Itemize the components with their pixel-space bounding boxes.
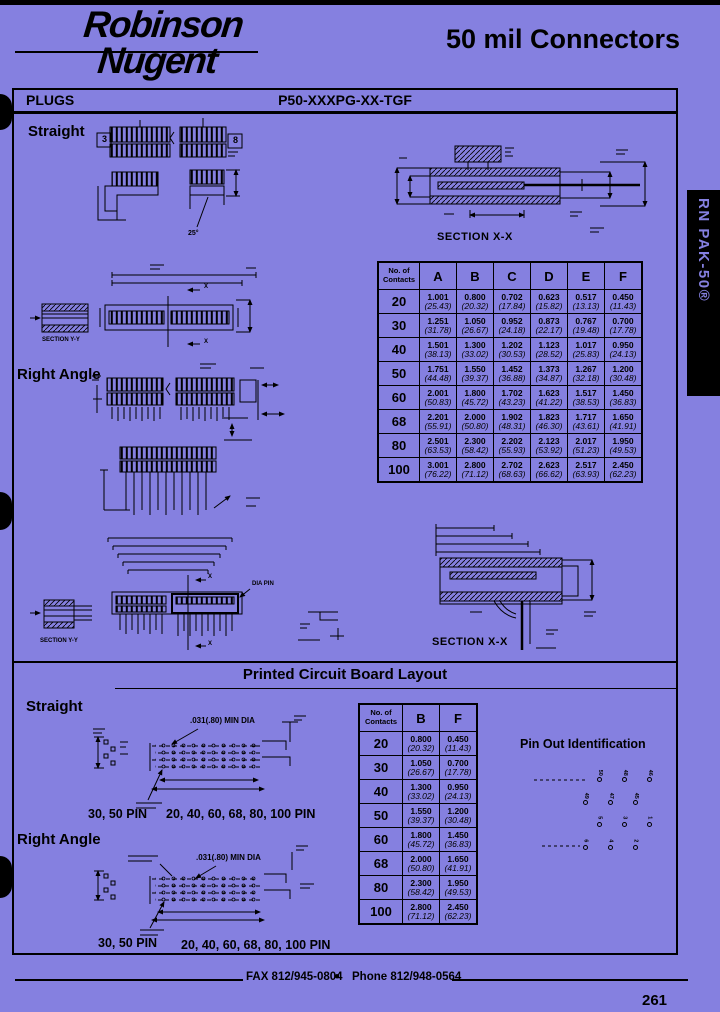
dim-cell: 2.800(71.12) — [403, 900, 440, 925]
dim-cell: 1.450(36.83) — [440, 828, 478, 852]
pins-30-50-label-2: 30, 50 PIN — [98, 936, 157, 950]
table-row: 602.001(50.83)1.800(45.72)1.702(43.23)1.… — [378, 386, 642, 410]
dim-cell: 1.200(30.48) — [605, 362, 643, 386]
dim-cell: 2.201(55.91) — [420, 410, 457, 434]
dim-cell: 1.123(28.52) — [531, 338, 568, 362]
pinout-title: Pin Out Identification — [520, 737, 646, 751]
dim-cell: 1.017(25.83) — [568, 338, 605, 362]
dim-cell: 2.450(62.23) — [605, 458, 643, 483]
table-header-row: No. of ContactsBF — [359, 704, 477, 732]
dim-cell: 1.950(49.53) — [440, 876, 478, 900]
contacts-count: 68 — [378, 410, 420, 434]
dim-cell: 1.751(44.48) — [420, 362, 457, 386]
pcb-layout-title: Printed Circuit Board Layout — [12, 666, 678, 683]
section-xx-label-1: SECTION X-X — [437, 231, 513, 243]
dim-cell: 0.767(19.48) — [568, 314, 605, 338]
contacts-count: 80 — [378, 434, 420, 458]
straight-section-label: Straight — [28, 123, 85, 140]
dim-cell: 1.550(39.37) — [403, 804, 440, 828]
dim-cell: 0.623(15.82) — [531, 290, 568, 314]
dim-cell: 2.450(62.23) — [440, 900, 478, 925]
dim-cell: 1.550(39.37) — [457, 362, 494, 386]
pin-marker: 2 — [630, 838, 640, 850]
dim-cell: 1.373(34.87) — [531, 362, 568, 386]
side-tab-label: RN PAK-50® — [695, 198, 712, 302]
dim-cell: 2.000(50.80) — [457, 410, 494, 434]
dim-cell: 1.517(38.53) — [568, 386, 605, 410]
pin-marker: 50 — [594, 770, 604, 782]
pcb-straight-label: Straight — [26, 698, 83, 715]
contacts-count: 40 — [359, 780, 403, 804]
table-row: 401.501(38.13)1.300(33.02)1.202(30.53)1.… — [378, 338, 642, 362]
dim-cell: 1.200(30.48) — [440, 804, 478, 828]
table-row: 802.300(58.42)1.950(49.53) — [359, 876, 477, 900]
dim-cell: 0.700(17.78) — [605, 314, 643, 338]
dim-cell: 0.450(11.43) — [605, 290, 643, 314]
column-header: No. of Contacts — [378, 262, 420, 290]
contacts-count: 40 — [378, 338, 420, 362]
table-row: 301.050(26.67)0.700(17.78) — [359, 756, 477, 780]
pcb-title-underline — [115, 688, 676, 689]
contacts-count: 60 — [378, 386, 420, 410]
binder-mark-1 — [0, 94, 12, 130]
dim-cell: 0.800(20.32) — [403, 732, 440, 756]
pins-rest-label-1: 20, 40, 60, 68, 80, 100 PIN — [166, 807, 315, 821]
contacts-count: 100 — [378, 458, 420, 483]
pinout-grid: 504846494745531642 — [528, 762, 678, 862]
dim-cell: 0.950(24.13) — [605, 338, 643, 362]
dim-cell: 1.902(48.31) — [494, 410, 531, 434]
dim-cell: 1.251(31.78) — [420, 314, 457, 338]
page-number: 261 — [642, 992, 667, 1009]
dim-cell: 2.000(50.80) — [403, 852, 440, 876]
table-row: 301.251(31.78)1.050(26.67)0.952(24.18)0.… — [378, 314, 642, 338]
pin-marker: 3 — [619, 815, 629, 827]
x-plane-marker-3: X — [208, 574, 212, 580]
balloon-marker-8: 8 — [230, 135, 241, 145]
contacts-count: 20 — [378, 290, 420, 314]
column-header: D — [531, 262, 568, 290]
table-row: 200.800(20.32)0.450(11.43) — [359, 732, 477, 756]
column-header: F — [440, 704, 478, 732]
dim-cell: 2.300(58.42) — [457, 434, 494, 458]
pin-marker: 46 — [644, 770, 654, 782]
dim-cell: 1.650(41.91) — [440, 852, 478, 876]
pin-marker: 47 — [605, 793, 615, 805]
dim-cell: 2.300(58.42) — [403, 876, 440, 900]
binder-mark-3 — [0, 856, 12, 898]
footer-rule-left — [15, 979, 243, 981]
dim-cell: 1.950(49.53) — [605, 434, 643, 458]
pin-marker: 45 — [630, 793, 640, 805]
balloon-marker-3: 3 — [99, 134, 110, 144]
column-header: A — [420, 262, 457, 290]
dim-cell: 1.800(45.72) — [457, 386, 494, 410]
table-row: 401.300(33.02)0.950(24.13) — [359, 780, 477, 804]
brand-name-line2: Nugent — [96, 42, 218, 79]
table-row: 501.751(44.48)1.550(39.37)1.452(36.88)1.… — [378, 362, 642, 386]
dim-cell: 3.001(76.22) — [420, 458, 457, 483]
dim-cell: 0.517(13.13) — [568, 290, 605, 314]
contacts-count: 60 — [359, 828, 403, 852]
dia-pin-annotation: DIA PIN — [252, 581, 274, 587]
dim-cell: 1.202(30.53) — [494, 338, 531, 362]
contacts-count: 80 — [359, 876, 403, 900]
pcb-dimensions-table: No. of ContactsBF200.800(20.32)0.450(11.… — [358, 703, 478, 925]
page-title: 50 mil Connectors — [420, 24, 680, 55]
dim-cell: 1.050(26.67) — [403, 756, 440, 780]
footer-rule-right — [452, 979, 688, 981]
dim-cell: 0.700(17.78) — [440, 756, 478, 780]
right-angle-section-label: Right Angle — [17, 366, 101, 383]
dim-cell: 0.950(24.13) — [440, 780, 478, 804]
dim-cell: 0.450(11.43) — [440, 732, 478, 756]
footer-bullet: ● — [334, 971, 340, 982]
min-dia-annotation-1: .031(.80) MIN DIA — [190, 716, 255, 725]
dim-cell: 1.823(46.30) — [531, 410, 568, 434]
footer-fax: FAX 812/945-0804 — [246, 971, 343, 983]
angle-annotation: 25° — [188, 230, 199, 237]
dim-cell: 2.702(68.63) — [494, 458, 531, 483]
binder-mark-2 — [0, 492, 12, 530]
dim-cell: 1.650(41.91) — [605, 410, 643, 434]
table-row: 1002.800(71.12)2.450(62.23) — [359, 900, 477, 925]
section-yy-label-2: SECTION Y-Y — [40, 638, 78, 644]
min-dia-annotation-2: .031(.80) MIN DIA — [196, 853, 261, 862]
pin-marker: 48 — [619, 770, 629, 782]
table-header-row: No. of ContactsABCDEF — [378, 262, 642, 290]
dim-cell: 0.800(20.32) — [457, 290, 494, 314]
contacts-count: 20 — [359, 732, 403, 756]
dim-cell: 2.017(51.23) — [568, 434, 605, 458]
table-row: 601.800(45.72)1.450(36.83) — [359, 828, 477, 852]
table-row: 501.550(39.37)1.200(30.48) — [359, 804, 477, 828]
pin-marker: 49 — [580, 793, 590, 805]
table-row: 1003.001(76.22)2.800(71.12)2.702(68.63)2… — [378, 458, 642, 483]
brand-name-line1: Robinson — [82, 6, 244, 43]
dim-cell: 1.623(41.22) — [531, 386, 568, 410]
pin-marker: 1 — [644, 815, 654, 827]
dimensions-table: No. of ContactsABCDEF201.001(25.43)0.800… — [377, 261, 643, 483]
column-header: E — [568, 262, 605, 290]
dim-cell: 2.202(55.93) — [494, 434, 531, 458]
dim-cell: 1.800(45.72) — [403, 828, 440, 852]
catalog-page: { "colors": {"background": "#8580E0", "i… — [0, 0, 720, 1012]
contacts-count: 30 — [359, 756, 403, 780]
pins-30-50-label-1: 30, 50 PIN — [88, 807, 147, 821]
table-row: 802.501(63.53)2.300(58.42)2.202(55.93)2.… — [378, 434, 642, 458]
pins-rest-label-2: 20, 40, 60, 68, 80, 100 PIN — [181, 938, 330, 952]
part-number: P50-XXXPG-XX-TGF — [240, 92, 450, 108]
contacts-count: 50 — [378, 362, 420, 386]
dim-cell: 2.123(53.92) — [531, 434, 568, 458]
section-xx-label-2: SECTION X-X — [432, 636, 508, 648]
dim-cell: 2.517(63.93) — [568, 458, 605, 483]
plugs-label: PLUGS — [26, 92, 74, 108]
contacts-count: 50 — [359, 804, 403, 828]
column-header: C — [494, 262, 531, 290]
contacts-count: 100 — [359, 900, 403, 925]
dim-cell: 0.873(22.17) — [531, 314, 568, 338]
section-yy-label-1: SECTION Y-Y — [42, 337, 80, 343]
column-header: F — [605, 262, 643, 290]
dim-cell: 2.001(50.83) — [420, 386, 457, 410]
dim-cell: 2.800(71.12) — [457, 458, 494, 483]
pin-marker: 6 — [580, 838, 590, 850]
pin-marker: 5 — [594, 815, 604, 827]
dim-cell: 1.450(36.83) — [605, 386, 643, 410]
pcb-section-divider — [12, 661, 678, 663]
dim-cell: 1.702(43.23) — [494, 386, 531, 410]
dim-cell: 1.452(36.88) — [494, 362, 531, 386]
column-header: B — [457, 262, 494, 290]
dim-cell: 2.623(66.62) — [531, 458, 568, 483]
contacts-count: 68 — [359, 852, 403, 876]
pin-marker: 4 — [605, 838, 615, 850]
contacts-count: 30 — [378, 314, 420, 338]
pcb-right-angle-label: Right Angle — [17, 831, 101, 848]
dim-cell: 1.001(25.43) — [420, 290, 457, 314]
table-row: 682.201(55.91)2.000(50.80)1.902(48.31)1.… — [378, 410, 642, 434]
x-plane-marker-1: X — [204, 284, 208, 290]
dim-cell: 1.300(33.02) — [457, 338, 494, 362]
column-header: B — [403, 704, 440, 732]
dim-cell: 1.267(32.18) — [568, 362, 605, 386]
dim-cell: 0.702(17.84) — [494, 290, 531, 314]
dim-cell: 1.501(38.13) — [420, 338, 457, 362]
x-plane-marker-2: X — [204, 339, 208, 345]
table-row: 201.001(25.43)0.800(20.32)0.702(17.84)0.… — [378, 290, 642, 314]
dim-cell: 1.300(33.02) — [403, 780, 440, 804]
footer-phone: Phone 812/948-0564 — [352, 971, 461, 983]
table-row: 682.000(50.80)1.650(41.91) — [359, 852, 477, 876]
dim-cell: 1.717(43.61) — [568, 410, 605, 434]
dim-cell: 0.952(24.18) — [494, 314, 531, 338]
x-plane-marker-4: X — [208, 641, 212, 647]
column-header: No. of Contacts — [359, 704, 403, 732]
dim-cell: 1.050(26.67) — [457, 314, 494, 338]
catalog-side-tab: RN PAK-50® — [687, 190, 720, 396]
dim-cell: 2.501(63.53) — [420, 434, 457, 458]
